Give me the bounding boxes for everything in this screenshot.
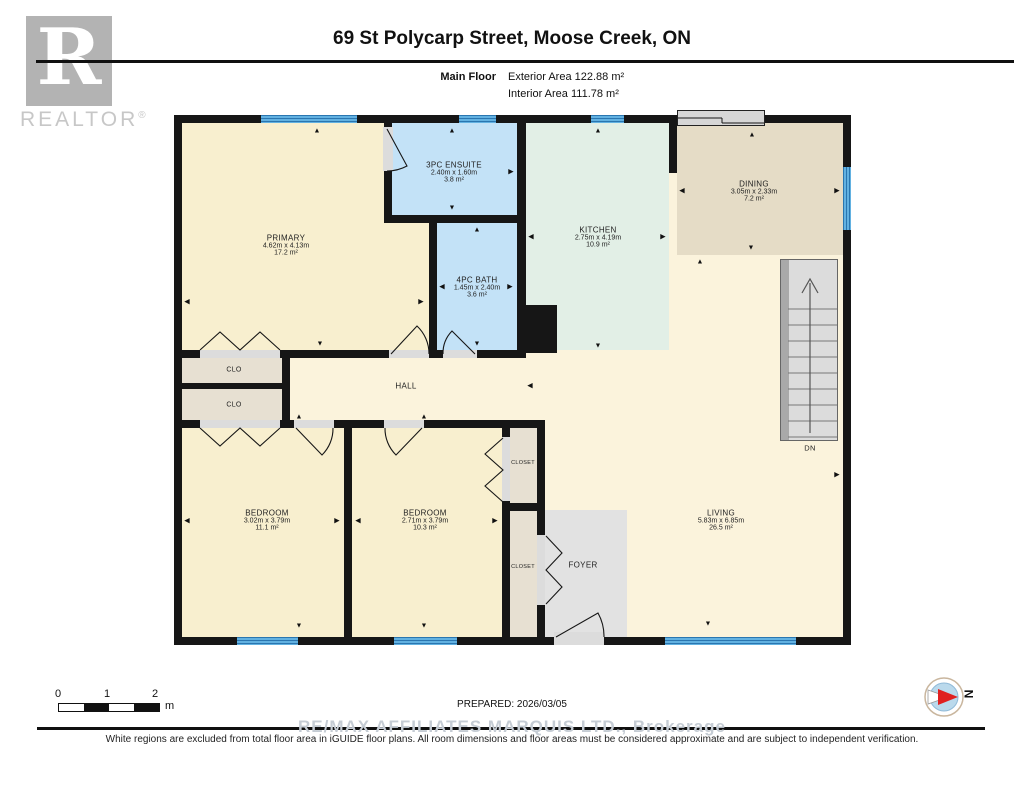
room-label-living: LIVING5.83m x 6.85m26.5 m²: [698, 509, 744, 532]
measure-arrow-icon: ▶: [660, 234, 665, 241]
room-label-bedroom-1: BEDROOM3.02m x 3.79m11.1 m²: [244, 509, 290, 532]
room-label-kitchen: KITCHEN2.75m x 4.19m10.9 m²: [575, 226, 621, 249]
interior-area: Interior Area 111.78 m²: [508, 88, 619, 100]
door-swing: [391, 326, 429, 354]
room-label-bedroom-2: BEDROOM2.71m x 3.79m10.3 m²: [402, 509, 448, 532]
bifold-door: [546, 536, 562, 604]
room-label-ensuite: 3PC ENSUITE2.40m x 1.60m3.8 m²: [426, 161, 482, 184]
room-label-bath: 4PC BATH1.45m x 2.40m3.6 m²: [454, 276, 500, 299]
measure-arrow-icon: ▲: [697, 259, 704, 266]
prepared-date: PREPARED: 2026/03/05: [0, 699, 1024, 710]
measure-arrow-icon: ▲: [474, 227, 481, 234]
door-swing: [387, 129, 407, 171]
measure-arrow-icon: ▲: [449, 128, 456, 135]
measure-arrow-icon: ▼: [474, 341, 481, 348]
door-swing: [443, 331, 475, 354]
bifold-door: [485, 438, 503, 502]
label-clo-2: CLO: [226, 402, 241, 409]
stairs-up-arrow-icon: [802, 279, 818, 433]
door-swing: [556, 613, 604, 637]
floorplan: PRIMARY4.62m x 4.13m17.2 m²3PC ENSUITE2.…: [174, 115, 851, 645]
measure-arrow-icon: ▲: [296, 414, 303, 421]
measure-arrow-icon: ◀: [527, 383, 532, 390]
measure-arrow-icon: ▶: [507, 284, 512, 291]
page-title: 69 St Polycarp Street, Moose Creek, ON: [0, 28, 1024, 50]
exterior-area: Exterior Area 122.88 m²: [508, 71, 624, 83]
label-closet-2: CLOSET: [511, 564, 535, 570]
measure-arrow-icon: ▼: [595, 343, 602, 350]
measure-arrow-icon: ◀: [528, 234, 533, 241]
measure-arrow-icon: ▼: [449, 205, 456, 212]
room-label-dining: DINING3.05m x 2.33m7.2 m²: [731, 180, 777, 203]
measure-arrow-icon: ▲: [595, 128, 602, 135]
measure-arrow-icon: ◀: [439, 284, 444, 291]
measure-arrow-icon: ▶: [508, 169, 513, 176]
measure-arrow-icon: ▼: [296, 623, 303, 630]
measure-arrow-icon: ▲: [749, 132, 756, 139]
label-stairs-down: DN: [804, 444, 815, 453]
door-swing: [296, 428, 333, 455]
label-clo-1: CLO: [226, 367, 241, 374]
measure-arrow-icon: ▶: [334, 518, 339, 525]
disclaimer-text: White regions are excluded from total fl…: [0, 734, 1024, 745]
stair-treads: [788, 309, 837, 437]
compass-north-label: N: [961, 690, 975, 699]
compass: N: [920, 673, 980, 723]
measure-arrow-icon: ▲: [314, 128, 321, 135]
measure-arrow-icon: ▶: [418, 299, 423, 306]
measure-arrow-icon: ◀: [184, 518, 189, 525]
measure-arrow-icon: ◀: [184, 299, 189, 306]
door-swing: [385, 428, 422, 455]
bifold-door: [200, 428, 280, 446]
title-divider: [36, 60, 1014, 63]
measure-arrow-icon: ▼: [705, 621, 712, 628]
bifold-door: [200, 332, 280, 350]
measure-arrow-icon: ▶: [834, 472, 839, 479]
sliding-door-track: [678, 118, 764, 123]
measure-arrow-icon: ▶: [834, 188, 839, 195]
realtor-logo-word: REALTOR®: [20, 108, 149, 132]
measure-arrow-icon: ▼: [421, 623, 428, 630]
measure-arrow-icon: ▼: [317, 341, 324, 348]
measure-arrow-icon: ◀: [679, 188, 684, 195]
measure-arrow-icon: ◀: [355, 518, 360, 525]
room-label-primary: PRIMARY4.62m x 4.13m17.2 m²: [263, 234, 309, 257]
measure-arrow-icon: ▲: [421, 414, 428, 421]
measure-arrow-icon: ▶: [492, 518, 497, 525]
measure-arrow-icon: ▼: [748, 245, 755, 252]
label-hall: HALL: [395, 382, 416, 391]
label-closet-1: CLOSET: [511, 460, 535, 466]
floorplan-page: R REALTOR® 69 St Polycarp Street, Moose …: [0, 0, 1024, 791]
label-foyer: FOYER: [568, 561, 597, 570]
